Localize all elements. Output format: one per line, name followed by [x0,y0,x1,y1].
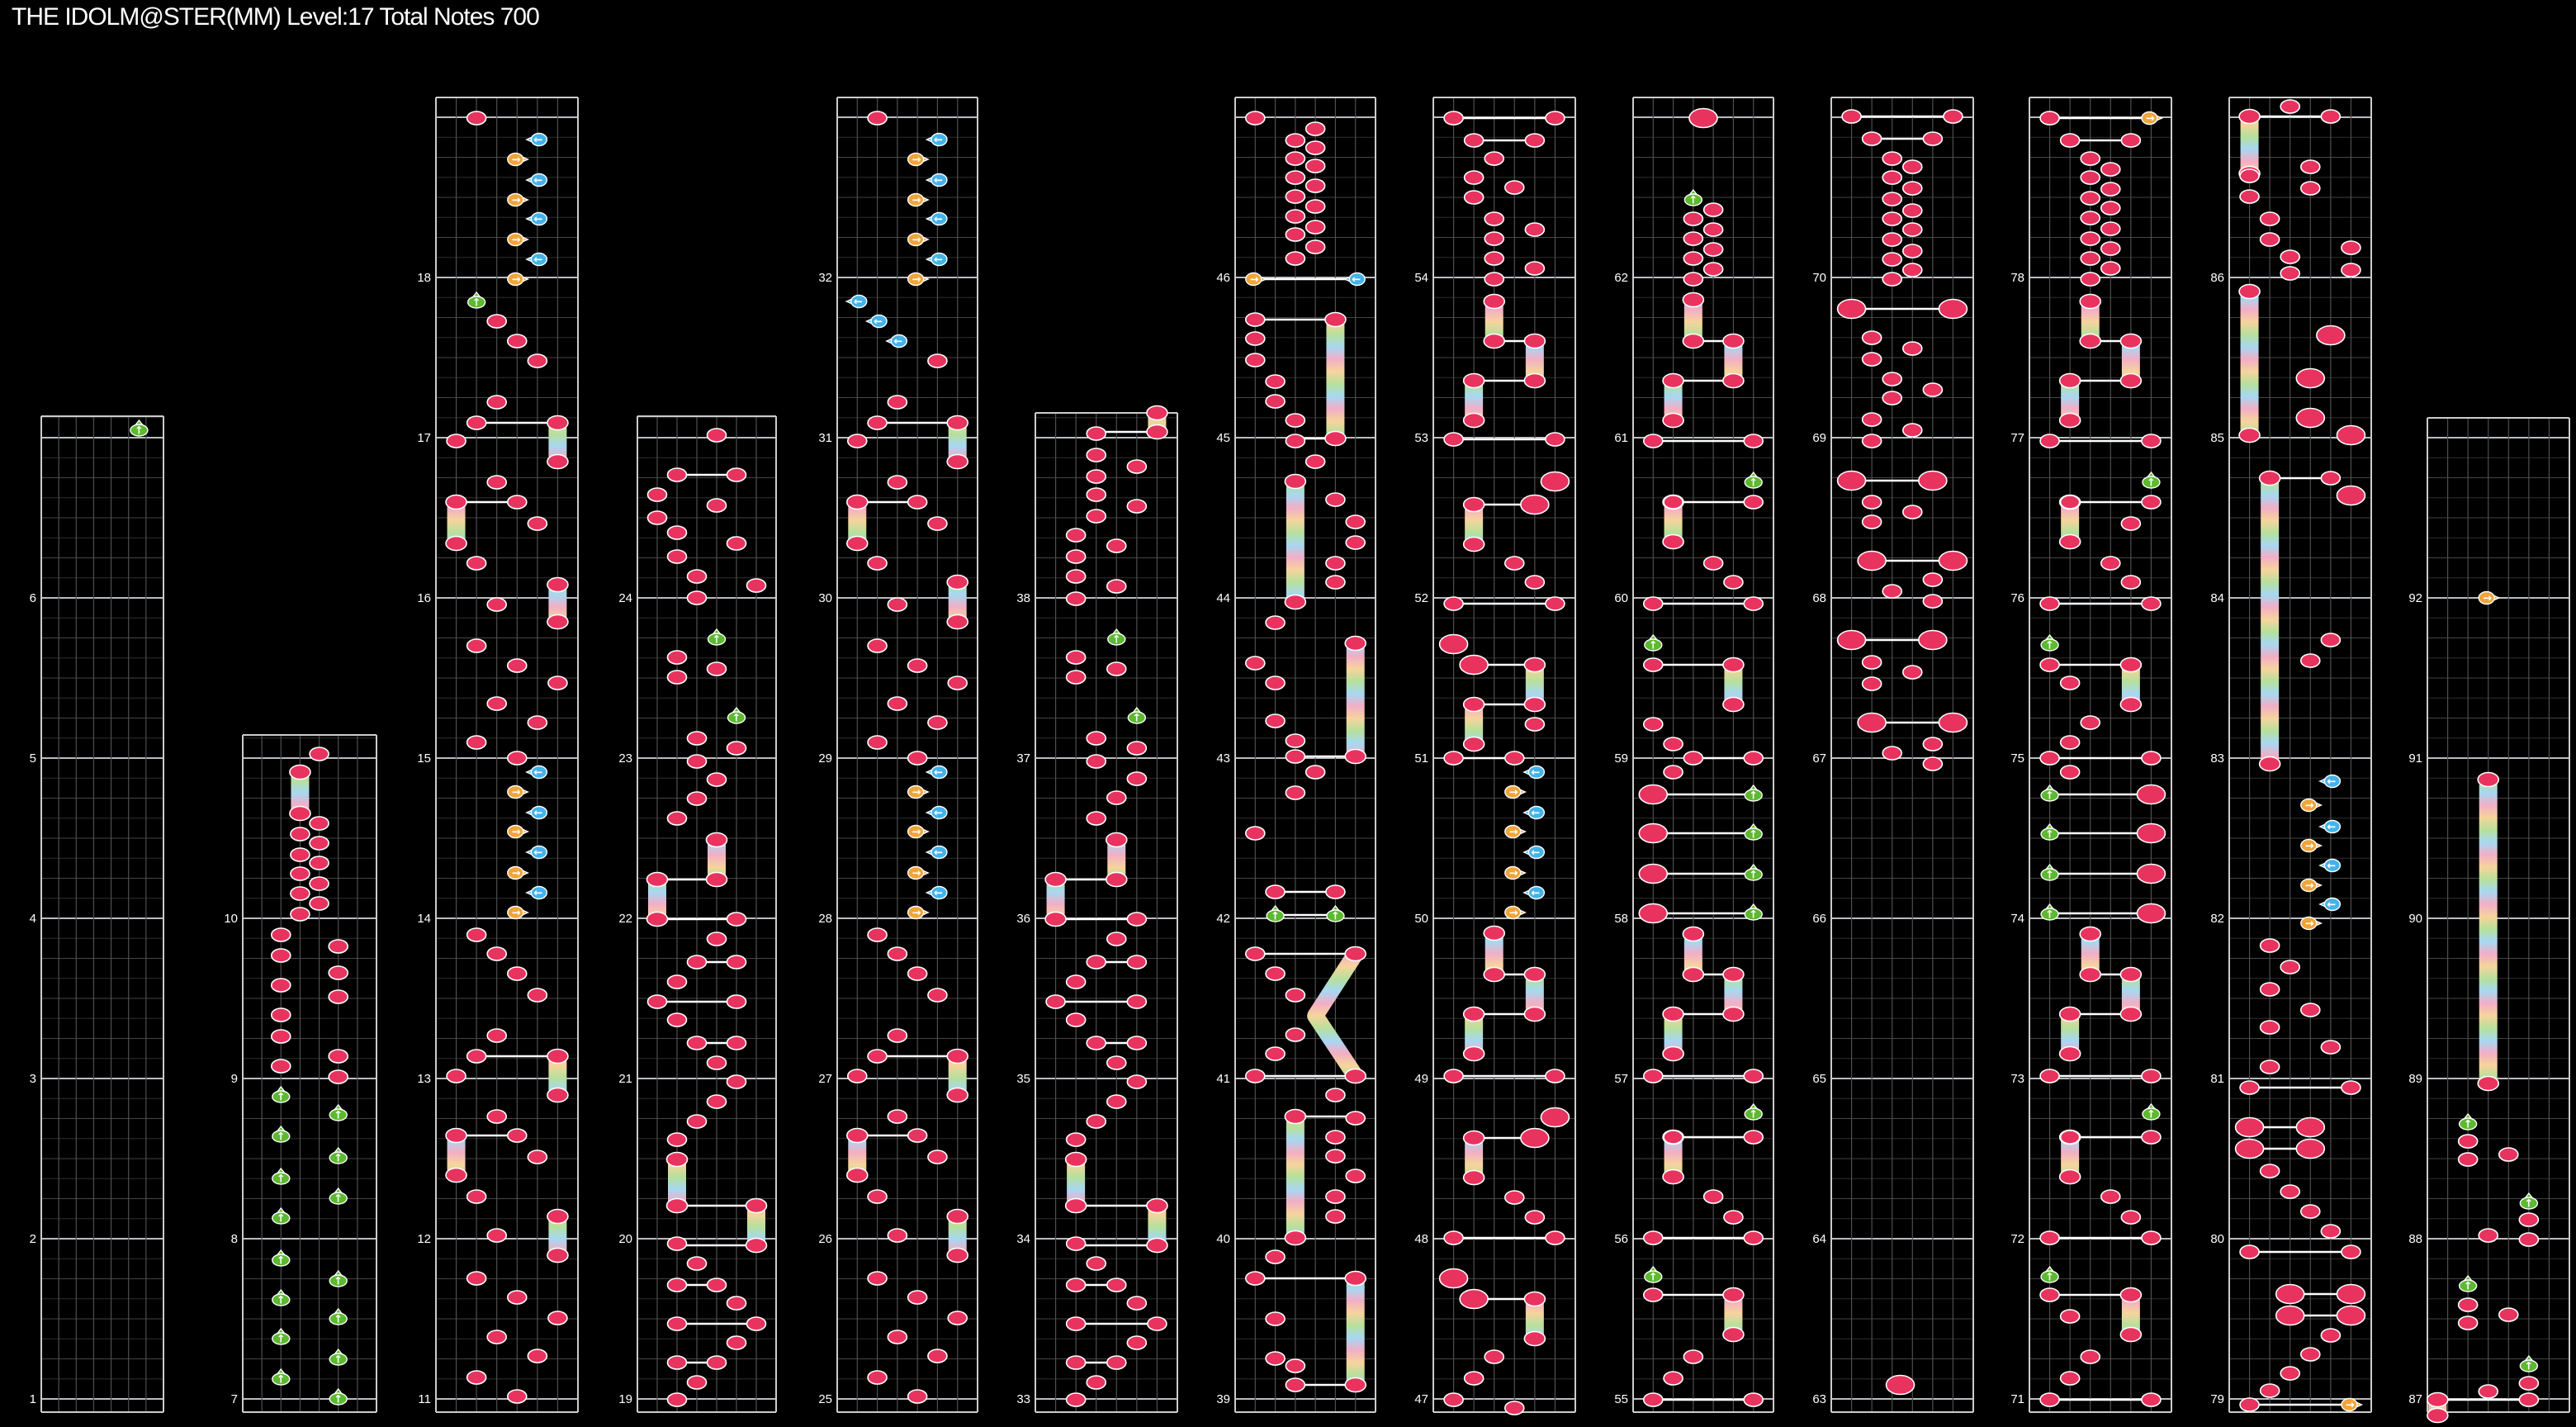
tap-note [708,499,727,512]
hold-cap [2120,1328,2141,1342]
tap-note [1067,1133,1086,1146]
left-arrow-icon: ← [533,847,542,860]
measure-number: 73 [2010,1072,2024,1086]
measure-number: 34 [1016,1232,1030,1246]
up-arrow-icon: ↑ [277,1173,286,1186]
measure-number: 35 [1016,1072,1030,1086]
measure-number: 15 [417,751,431,766]
tap-note [1903,666,1922,679]
tap-note [467,416,486,429]
tap-note [467,1050,486,1063]
measure-number: 51 [1414,751,1428,766]
tap-note [1903,160,1922,173]
right-arrow-icon: → [2305,800,2314,813]
measure-number: 88 [2408,1232,2422,1246]
tap-note [1505,1191,1524,1204]
flick-up-note: ↑ [1745,472,1762,490]
up-arrow-icon: ↑ [277,1131,286,1144]
tap-note [2040,1069,2059,1083]
tap-note [310,817,329,830]
hold-cap [647,873,668,887]
hold-cap [290,766,310,780]
tap-note [291,848,310,861]
left-arrow-icon: ← [533,214,542,226]
right-arrow-icon: → [512,868,521,880]
tap-note [291,887,310,900]
tap-note [908,495,927,509]
tap-note [1067,975,1086,988]
tap-note [928,716,947,729]
tap-note [2101,163,2120,176]
flick-left-note: ← [527,174,547,187]
measure-number: 52 [1414,591,1428,605]
flick-up-note: ↑ [1745,904,1762,922]
measure-number: 75 [2010,751,2024,766]
hold-body [2241,116,2259,173]
left-arrow-icon: ← [934,135,943,147]
hold-note [2120,968,2141,1022]
left-arrow-icon: ← [533,767,542,780]
flick-up-note: ↑ [1684,190,1702,207]
measure-number: 39 [1216,1392,1230,1406]
measure-number: 71 [2010,1392,2024,1406]
big-tap-note [1887,1376,1915,1395]
hold-cap [2239,110,2260,124]
tap-note [1744,1231,1763,1244]
flick-right-note: → [2479,592,2499,605]
measure-number: 25 [818,1392,832,1406]
hold-note [947,416,968,469]
tap-note [467,557,486,570]
tap-note [1882,233,1901,246]
tap-note [2240,190,2259,203]
hold-cap [1345,750,1366,764]
tap-note [928,1150,947,1164]
measure-number: 16 [417,591,431,605]
tap-note [888,1229,907,1242]
tap-note [1644,1231,1663,1244]
tap-note [508,334,527,348]
tap-note [329,1050,348,1063]
flick-left-note: ← [926,174,947,187]
hold-cap [446,1169,466,1183]
tap-note [668,671,687,684]
tap-note [487,1110,506,1123]
hold-note [1147,1199,1167,1253]
tap-note [2061,134,2080,147]
tap-note [2142,751,2161,765]
measure-number: 58 [1614,912,1628,926]
big-tap-note [2236,1140,2264,1159]
up-arrow-icon: ↑ [1749,1109,1758,1121]
up-arrow-icon: ↑ [2045,870,2054,882]
tap-note [868,557,887,570]
measure-number: 26 [818,1232,832,1246]
big-tap-note [1460,656,1488,675]
hold-cap [1045,873,1066,887]
tap-note [2301,1003,2320,1017]
tap-note [727,913,746,926]
tap-note [1306,240,1325,254]
tap-note [727,1297,746,1310]
tap-note [2261,1164,2280,1178]
tap-note [1465,134,1484,147]
measure-number: 33 [1016,1392,1030,1406]
left-arrow-icon: ← [533,175,542,187]
tap-note [668,468,687,481]
right-arrow-icon: → [1509,908,1518,920]
measure-number: 90 [2408,912,2422,926]
tap-note [1664,1131,1683,1144]
tap-note [1286,171,1305,184]
flick-left-note: ← [926,887,947,900]
tap-note [2081,252,2100,265]
tap-note [1882,192,1901,206]
tap-note [668,1278,687,1292]
hold-cap [1524,374,1545,388]
flick-up-note: ↑ [2143,1104,2160,1121]
left-arrow-icon: ← [934,175,943,187]
tap-note [272,1030,291,1043]
measure-number: 11 [418,1392,431,1406]
measure-number: 37 [1016,751,1030,766]
flick-left-note: ← [527,887,547,900]
tap-note [528,1150,547,1164]
measure-number: 66 [1812,912,1826,926]
tap-note [2342,241,2361,254]
measure-number: 27 [818,1072,832,1086]
measure-number: 40 [1216,1232,1230,1246]
tap-note [2040,751,2059,765]
hold-cap [1147,1199,1167,1213]
hold-note [1723,968,1744,1022]
tap-note [272,949,291,962]
tap-note [1505,751,1524,765]
hold-cap [1484,295,1504,309]
hold-cap [1524,334,1545,348]
hold-cap [547,578,568,592]
tap-note [1266,714,1285,728]
hold-cap [1683,293,1703,307]
measure-number: 79 [2210,1392,2224,1406]
tap-note [1306,179,1325,192]
tap-note [2459,1298,2478,1311]
tap-note [2101,201,2120,215]
hold-cap [1524,1292,1545,1306]
flick-right-note: → [1246,273,1267,287]
measure-number: 22 [618,912,632,926]
hold-cap [1683,927,1703,941]
flick-up-note: ↑ [329,1148,347,1165]
hold-cap [2060,1047,2081,1061]
tap-note [1087,1257,1106,1270]
right-arrow-icon: → [512,154,521,167]
tap-note [708,1278,727,1292]
measure-number: 32 [818,271,832,285]
tap-note [2280,100,2299,113]
big-tap-note [2276,1285,2304,1304]
tap-note [2061,495,2080,509]
tap-note [2459,1316,2478,1330]
flick-right-note: → [2301,840,2322,853]
measure-number: 57 [1614,1072,1628,1086]
hold-note [1524,658,1545,712]
flick-up-note: ↑ [708,629,726,647]
right-arrow-icon: → [1509,868,1518,880]
measure-number: 30 [818,591,832,605]
measure-number: 67 [1812,751,1826,766]
tap-note [868,1190,887,1203]
up-arrow-icon: ↑ [277,1092,286,1104]
hold-cap [947,1050,968,1064]
tap-note [2519,1393,2538,1406]
tap-note [329,940,348,953]
hold-cap [547,1050,568,1064]
tap-note [2519,1377,2538,1390]
measure-number: 29 [818,751,832,766]
tap-note [508,1129,527,1142]
up-arrow-icon: ↑ [1749,477,1758,490]
tap-note [310,837,329,850]
tap-note [2261,212,2280,225]
tap-note [1127,1036,1146,1050]
measure-number: 91 [2408,751,2422,766]
up-arrow-icon: ↑ [2464,1281,2473,1293]
tap-note [1127,955,1146,969]
left-arrow-icon: ← [2327,776,2336,789]
measure-number: 64 [1812,1232,1826,1246]
hold-cap [1285,1231,1305,1245]
tap-note [2321,633,2340,647]
flick-right-note: → [908,273,929,287]
hold-cap [2120,1007,2141,1022]
tap-note [467,1190,486,1203]
tap-note [1346,536,1365,549]
hold-body [1347,1278,1365,1385]
tap-note [2280,267,2299,280]
tap-note [1664,495,1683,509]
left-arrow-icon: ← [934,214,943,226]
tap-note [1465,1372,1484,1385]
tap-note [2301,182,2320,195]
flick-up-note: ↑ [272,1369,290,1387]
tap-note [1067,570,1086,583]
tap-note [2081,716,2100,729]
tap-note [2459,1135,2478,1148]
tap-note [1087,812,1106,825]
big-tap-note [2317,326,2345,345]
hold-cap [2427,1409,2448,1423]
hold-note [1285,475,1305,609]
tap-note [1903,244,1922,258]
right-arrow-icon: → [2146,113,2155,126]
flick-left-note: ← [2320,821,2341,834]
tap-note [1246,827,1265,840]
measure-number: 31 [818,431,832,445]
flick-up-note: ↑ [272,1290,290,1307]
hold-cap [847,1169,868,1183]
measure-number: 50 [1414,912,1428,926]
hold-cap [1464,1007,1485,1022]
tap-note [2301,1348,2320,1361]
tap-note [2121,576,2140,589]
tap-note [2321,472,2340,485]
tap-note [688,792,707,805]
tap-note [2040,434,2059,448]
tap-note [1505,181,1524,194]
measure-number: 23 [618,751,632,766]
tap-note [1326,1190,1345,1203]
hold-note [1325,313,1346,446]
measure-number: 78 [2010,271,2024,285]
flick-right-note: → [908,194,929,207]
tap-note [1266,1250,1285,1263]
tap-note [310,856,329,870]
tap-note [508,1291,527,1304]
tap-note [2142,1069,2161,1083]
tap-note [1903,342,1922,355]
tap-note [467,736,486,749]
right-arrow-icon: → [912,274,921,287]
up-arrow-icon: ↑ [1132,713,1141,725]
tap-note [1087,427,1106,440]
big-tap-note [2276,1306,2304,1325]
flick-left-note: ← [527,766,547,780]
tap-note [1246,332,1265,345]
big-tap-note [1521,495,1549,514]
hold-note [1663,374,1683,428]
tap-note [1525,576,1544,589]
left-arrow-icon: ← [893,336,902,348]
hold-cap [1106,873,1127,887]
tap-note [1266,1312,1285,1325]
tap-note [467,639,486,652]
tap-note [708,429,727,442]
tap-note [1664,1372,1683,1385]
tap-note [1346,515,1365,529]
hold-cap [2478,1077,2498,1091]
tap-note [2321,1225,2340,1238]
tap-note [1644,1069,1663,1083]
tap-note [310,897,329,910]
left-arrow-icon: ← [1531,808,1540,820]
tap-note [487,396,506,409]
hold-note [446,495,466,551]
hold-cap [1066,1153,1087,1167]
hold-note [2120,1288,2141,1342]
right-arrow-icon: → [912,908,921,920]
hold-cap [947,576,968,590]
tap-note [272,979,291,992]
flick-left-note: ← [1524,766,1545,780]
hold-cap [2120,1288,2141,1302]
tap-note [1127,500,1146,513]
tap-note [1882,171,1901,184]
measure-number: 44 [1216,591,1230,605]
big-tap-note [2296,1118,2324,1137]
flick-right-note: → [2301,879,2322,893]
up-arrow-icon: ↑ [1749,790,1758,803]
up-arrow-icon: ↑ [1749,829,1758,842]
tap-note [727,1075,746,1088]
tap-note [1465,171,1484,184]
tap-note [668,1317,687,1330]
left-arrow-icon: ← [1352,274,1361,287]
tap-note [727,955,746,969]
hold-cap [1524,968,1545,982]
left-arrow-icon: ← [2327,899,2336,912]
right-arrow-icon: → [1509,827,1518,839]
tap-note [2342,1081,2361,1094]
flick-up-note: ↑ [272,1169,290,1186]
tap-note [1087,1376,1106,1389]
tap-note [528,517,547,530]
tap-note [888,1110,907,1123]
flick-left-note: ← [926,254,947,267]
tap-note [2261,983,2280,996]
left-arrow-icon: ← [934,847,943,860]
tap-note [1067,529,1086,542]
tap-note [1266,375,1285,388]
up-arrow-icon: ↑ [334,1193,343,1206]
hold-note [1345,1272,1366,1392]
tap-note [2061,766,2080,779]
measure-number: 9 [231,1072,238,1086]
hold-note [547,1050,568,1102]
flick-up-note: ↑ [329,1349,347,1367]
up-arrow-icon: ↑ [334,1110,343,1122]
up-arrow-icon: ↑ [1688,195,1698,207]
tap-note [688,1115,707,1128]
measure-number: 84 [2210,591,2224,605]
measure-number: 43 [1216,751,1230,766]
flick-up-note: ↑ [2520,1193,2537,1211]
tap-note [2142,1393,2161,1406]
tap-note [2499,1148,2518,1161]
tap-note [1485,273,1503,286]
left-arrow-icon: ← [1531,888,1540,900]
tap-note [1127,772,1146,785]
hold-cap [1723,698,1744,712]
tap-note [1067,1278,1086,1292]
left-arrow-icon: ← [934,767,943,780]
tap-note [908,967,927,980]
up-arrow-icon: ↑ [1749,909,1758,922]
up-arrow-icon: ↑ [2045,640,2054,652]
measure-grid [1831,97,1973,1412]
measure-number: 92 [2408,591,2422,605]
tap-note [1683,1350,1702,1363]
measure-number: 69 [1812,431,1826,445]
tap-note [2321,1041,2340,1054]
measure-number: 6 [30,591,36,605]
tap-note [2261,1021,2280,1034]
hold-cap [1683,968,1703,982]
hold-cap [746,1199,767,1213]
tap-note [1326,576,1345,589]
big-tap-note [2236,1118,2264,1137]
hold-cap [667,1153,688,1167]
hold-note [1683,293,1703,348]
hold-cap [1464,374,1485,388]
tap-note [928,517,947,530]
tap-note [688,1036,707,1050]
flick-left-note: ← [926,134,947,147]
tap-note [848,1069,867,1083]
tap-note [1266,967,1285,980]
up-arrow-icon: ↑ [277,1334,286,1346]
right-arrow-icon: → [2305,918,2314,931]
